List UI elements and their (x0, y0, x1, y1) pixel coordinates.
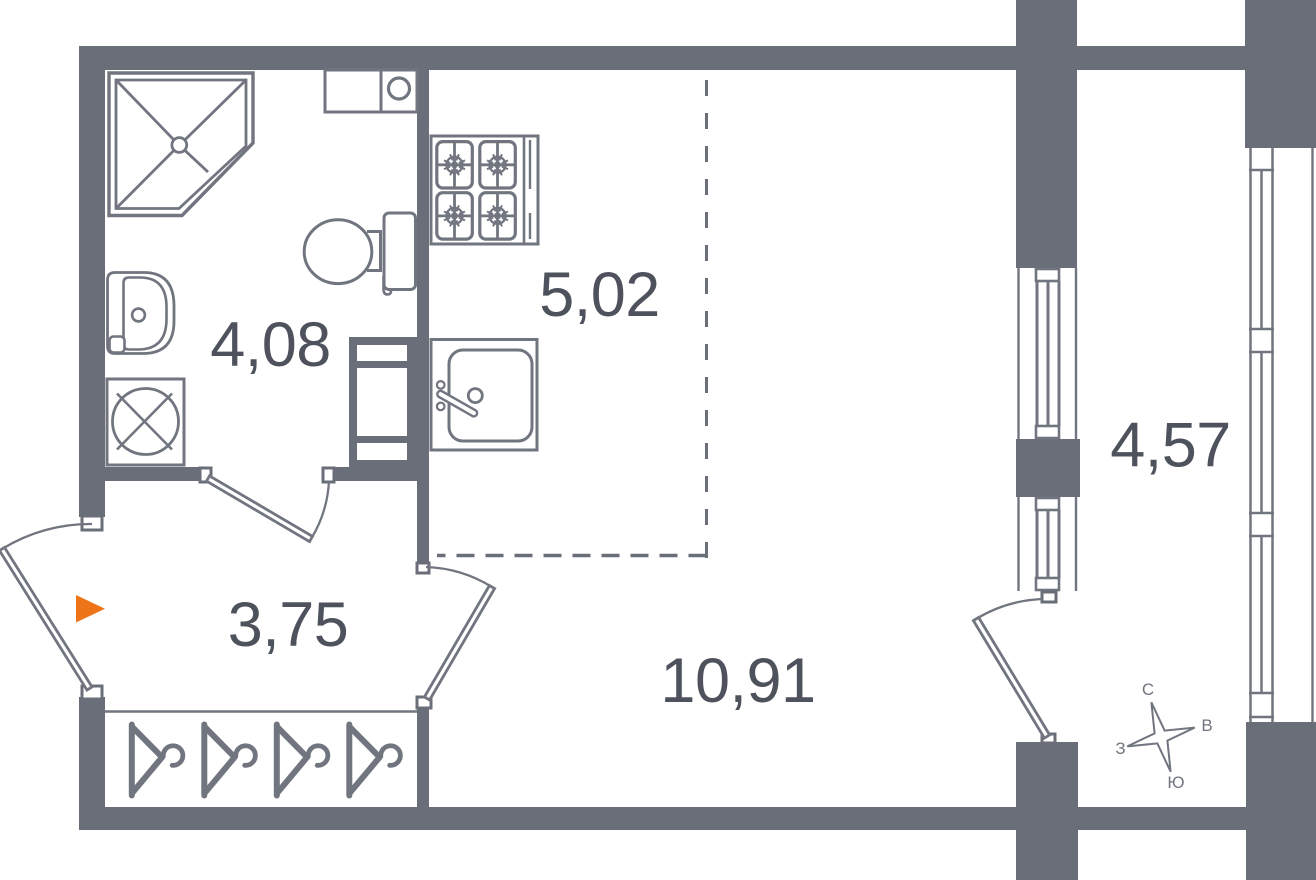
svg-text:В: В (1201, 716, 1212, 735)
svg-text:4,08: 4,08 (210, 310, 331, 380)
svg-text:10,91: 10,91 (660, 646, 815, 716)
svg-text:С: С (1142, 680, 1154, 699)
svg-text:З: З (1115, 739, 1125, 758)
svg-text:3,75: 3,75 (228, 590, 349, 660)
svg-text:Ю: Ю (1167, 773, 1184, 792)
svg-text:5,02: 5,02 (539, 260, 660, 330)
svg-text:4,57: 4,57 (1110, 411, 1231, 481)
